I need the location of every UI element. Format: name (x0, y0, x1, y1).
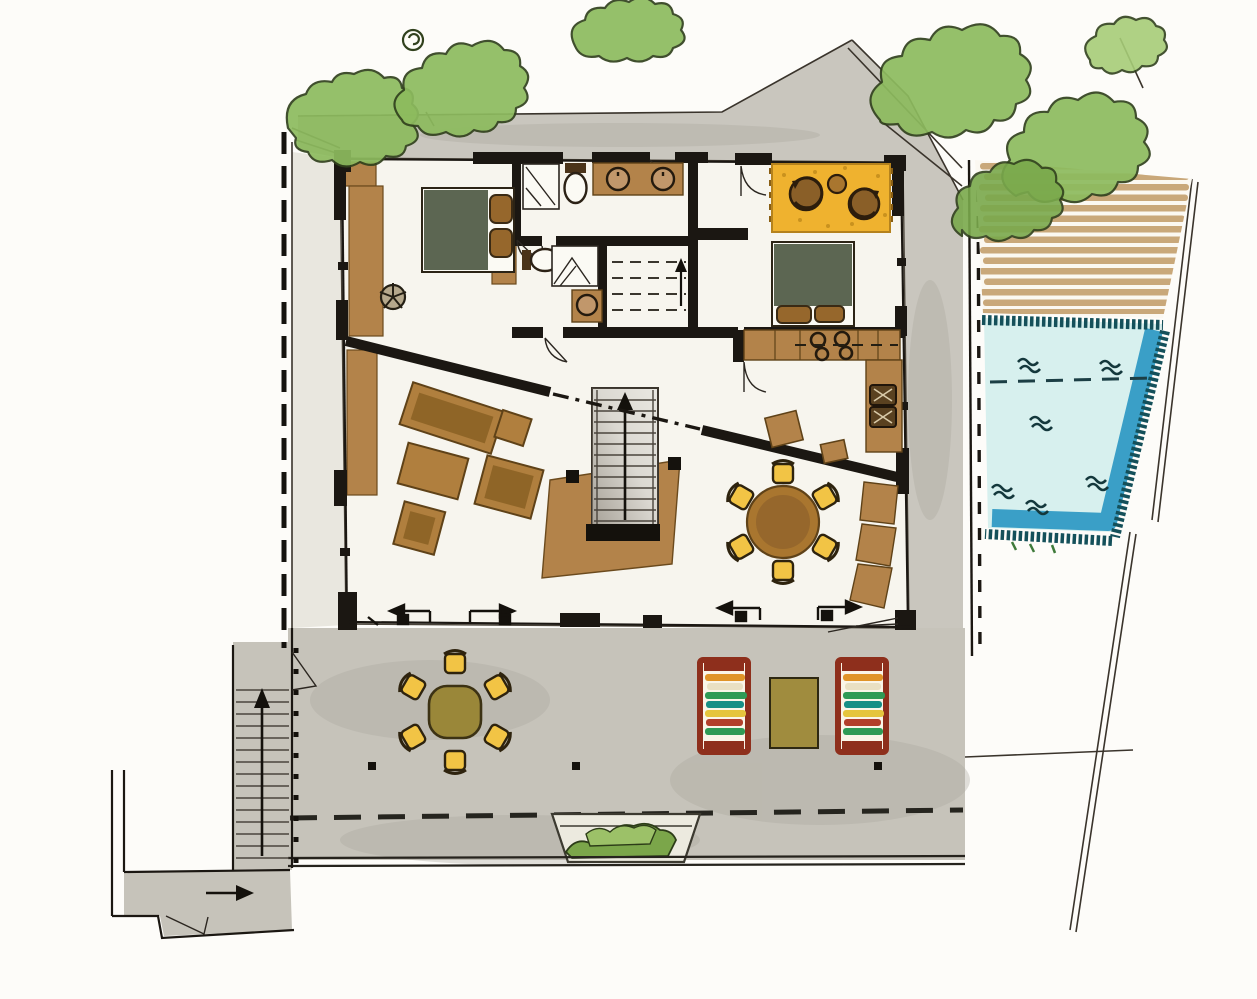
swivel-chair-2 (849, 189, 879, 219)
shower-2 (552, 246, 598, 286)
toilet-1 (565, 163, 587, 203)
outdoor-table (429, 686, 481, 738)
left-wall-strip (292, 152, 346, 628)
stair-base-rail (586, 524, 660, 541)
tree-top-center (572, 0, 685, 62)
swivel-chair-1 (790, 178, 822, 210)
basin-sink-2 (577, 295, 597, 315)
sun-lounger-2 (838, 660, 886, 752)
side-table (828, 175, 846, 193)
bed-1 (422, 188, 514, 272)
bed-2 (772, 242, 854, 326)
sun-lounger-1 (700, 660, 748, 752)
shower-1 (523, 164, 559, 209)
floor-plan-canvas (0, 0, 1257, 999)
tree-top-left (287, 70, 418, 167)
mat (770, 678, 818, 748)
planter (552, 814, 700, 862)
pool-edge-tufts (1012, 542, 1055, 553)
walkway (124, 870, 292, 936)
floor-plan-page (0, 0, 1257, 999)
house (334, 150, 916, 632)
tree-top-left-2 (394, 41, 528, 137)
oven-appliance (870, 385, 896, 427)
tree-detail-circle (403, 30, 423, 50)
